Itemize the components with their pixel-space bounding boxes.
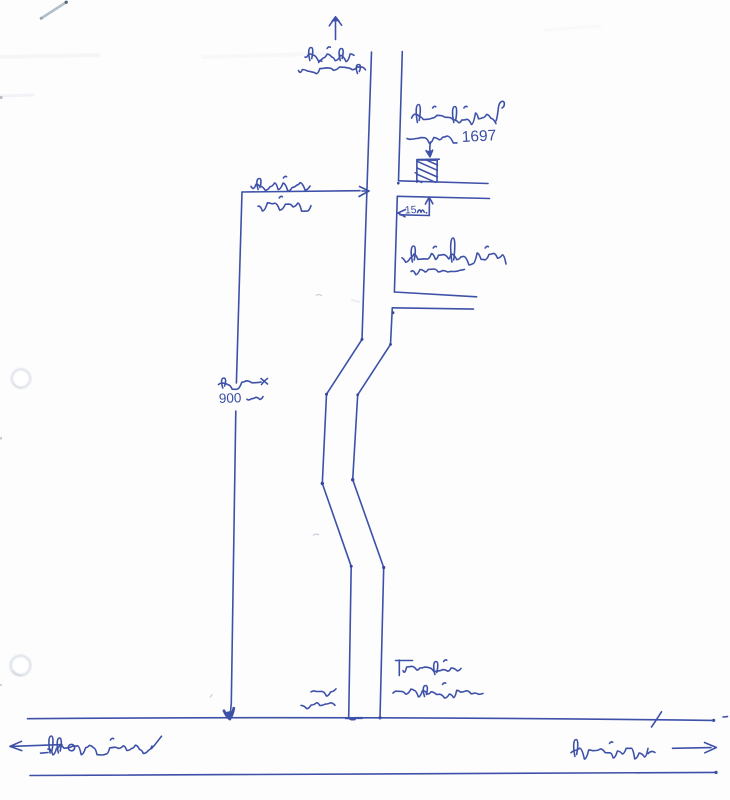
svg-text:1697: 1697 xyxy=(461,127,496,146)
svg-text:900: 900 xyxy=(219,390,242,406)
svg-text:15: 15 xyxy=(405,204,417,217)
